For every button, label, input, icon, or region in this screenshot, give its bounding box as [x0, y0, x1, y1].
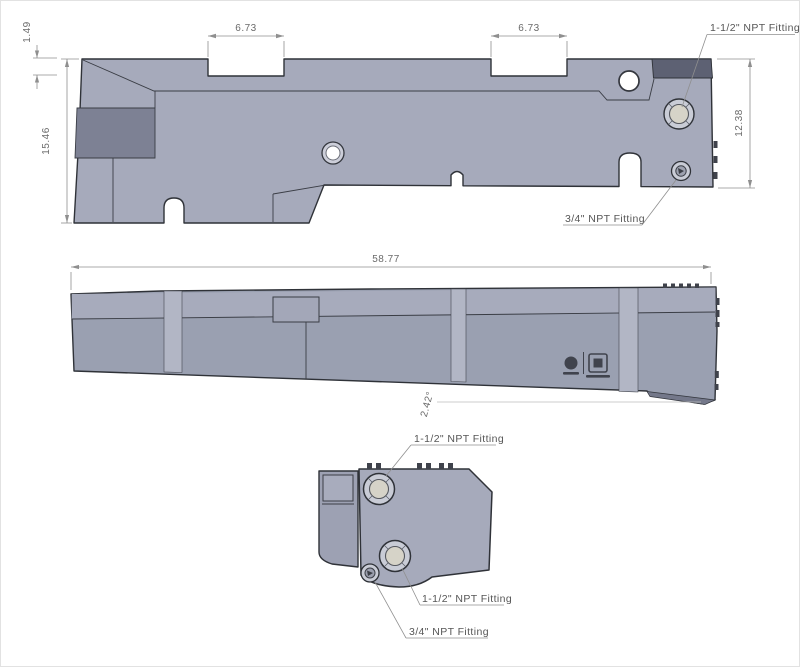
dim-lip-height: 1.49	[22, 21, 57, 89]
npt-fitting-small-top-view	[672, 162, 691, 181]
dim-bottom-angle-value: 2.42°	[419, 390, 436, 418]
dim-lip-height-value: 1.49	[22, 21, 33, 42]
dim-notch-left: 6.73	[208, 23, 284, 57]
npt-fitting-top-end-view	[364, 474, 395, 505]
dim-overall-length: 58.77	[71, 254, 711, 290]
technical-drawing-canvas: 6.73 6.73 1.49 15.46	[1, 1, 800, 667]
end-view-flange-pocket	[323, 475, 353, 501]
dim-notch-right: 6.73	[491, 23, 567, 57]
leader-label-fitting-drain-end: 3/4" NPT Fitting	[375, 582, 489, 638]
npt-fitting-bottom-end-view	[380, 541, 411, 572]
side-view-pocket	[273, 297, 319, 322]
label-fitting-top-end-text: 1-1/2" NPT Fitting	[414, 433, 504, 445]
label-fitting-small-top-text: 3/4" NPT Fitting	[565, 213, 645, 225]
side-view: 58.77 2.42°	[71, 254, 720, 418]
drawing-page: 6.73 6.73 1.49 15.46	[0, 0, 800, 667]
dim-right-height: 12.38	[717, 59, 755, 188]
vent-hole	[619, 71, 639, 91]
top-view-corner-band	[652, 59, 713, 78]
center-hole	[322, 142, 344, 164]
dim-overall-height: 15.46	[41, 59, 79, 223]
top-view-body	[74, 59, 713, 223]
top-view-dark-panel	[75, 108, 155, 158]
label-fitting-large-top-text: 1-1/2" NPT Fitting	[710, 22, 800, 34]
top-view-edge-nubs	[714, 141, 718, 179]
end-view-top-nubs	[367, 463, 453, 469]
dim-overall-length-value: 58.77	[372, 254, 400, 265]
npt-fitting-drain-end-view	[361, 564, 379, 582]
end-view: 1-1/2" NPT Fitting 1-1/2" NPT Fitting 3/…	[319, 433, 512, 638]
dim-right-height-value: 12.38	[734, 109, 745, 137]
dim-overall-height-value: 15.46	[41, 127, 52, 155]
label-fitting-drain-end-text: 3/4" NPT Fitting	[409, 626, 489, 638]
label-fitting-bottom-end-text: 1-1/2" NPT Fitting	[422, 593, 512, 605]
npt-fitting-large-top-view	[664, 99, 694, 129]
dim-notch-right-value: 6.73	[518, 23, 539, 34]
dim-notch-left-value: 6.73	[235, 23, 256, 34]
top-view: 6.73 6.73 1.49 15.46	[22, 21, 800, 225]
